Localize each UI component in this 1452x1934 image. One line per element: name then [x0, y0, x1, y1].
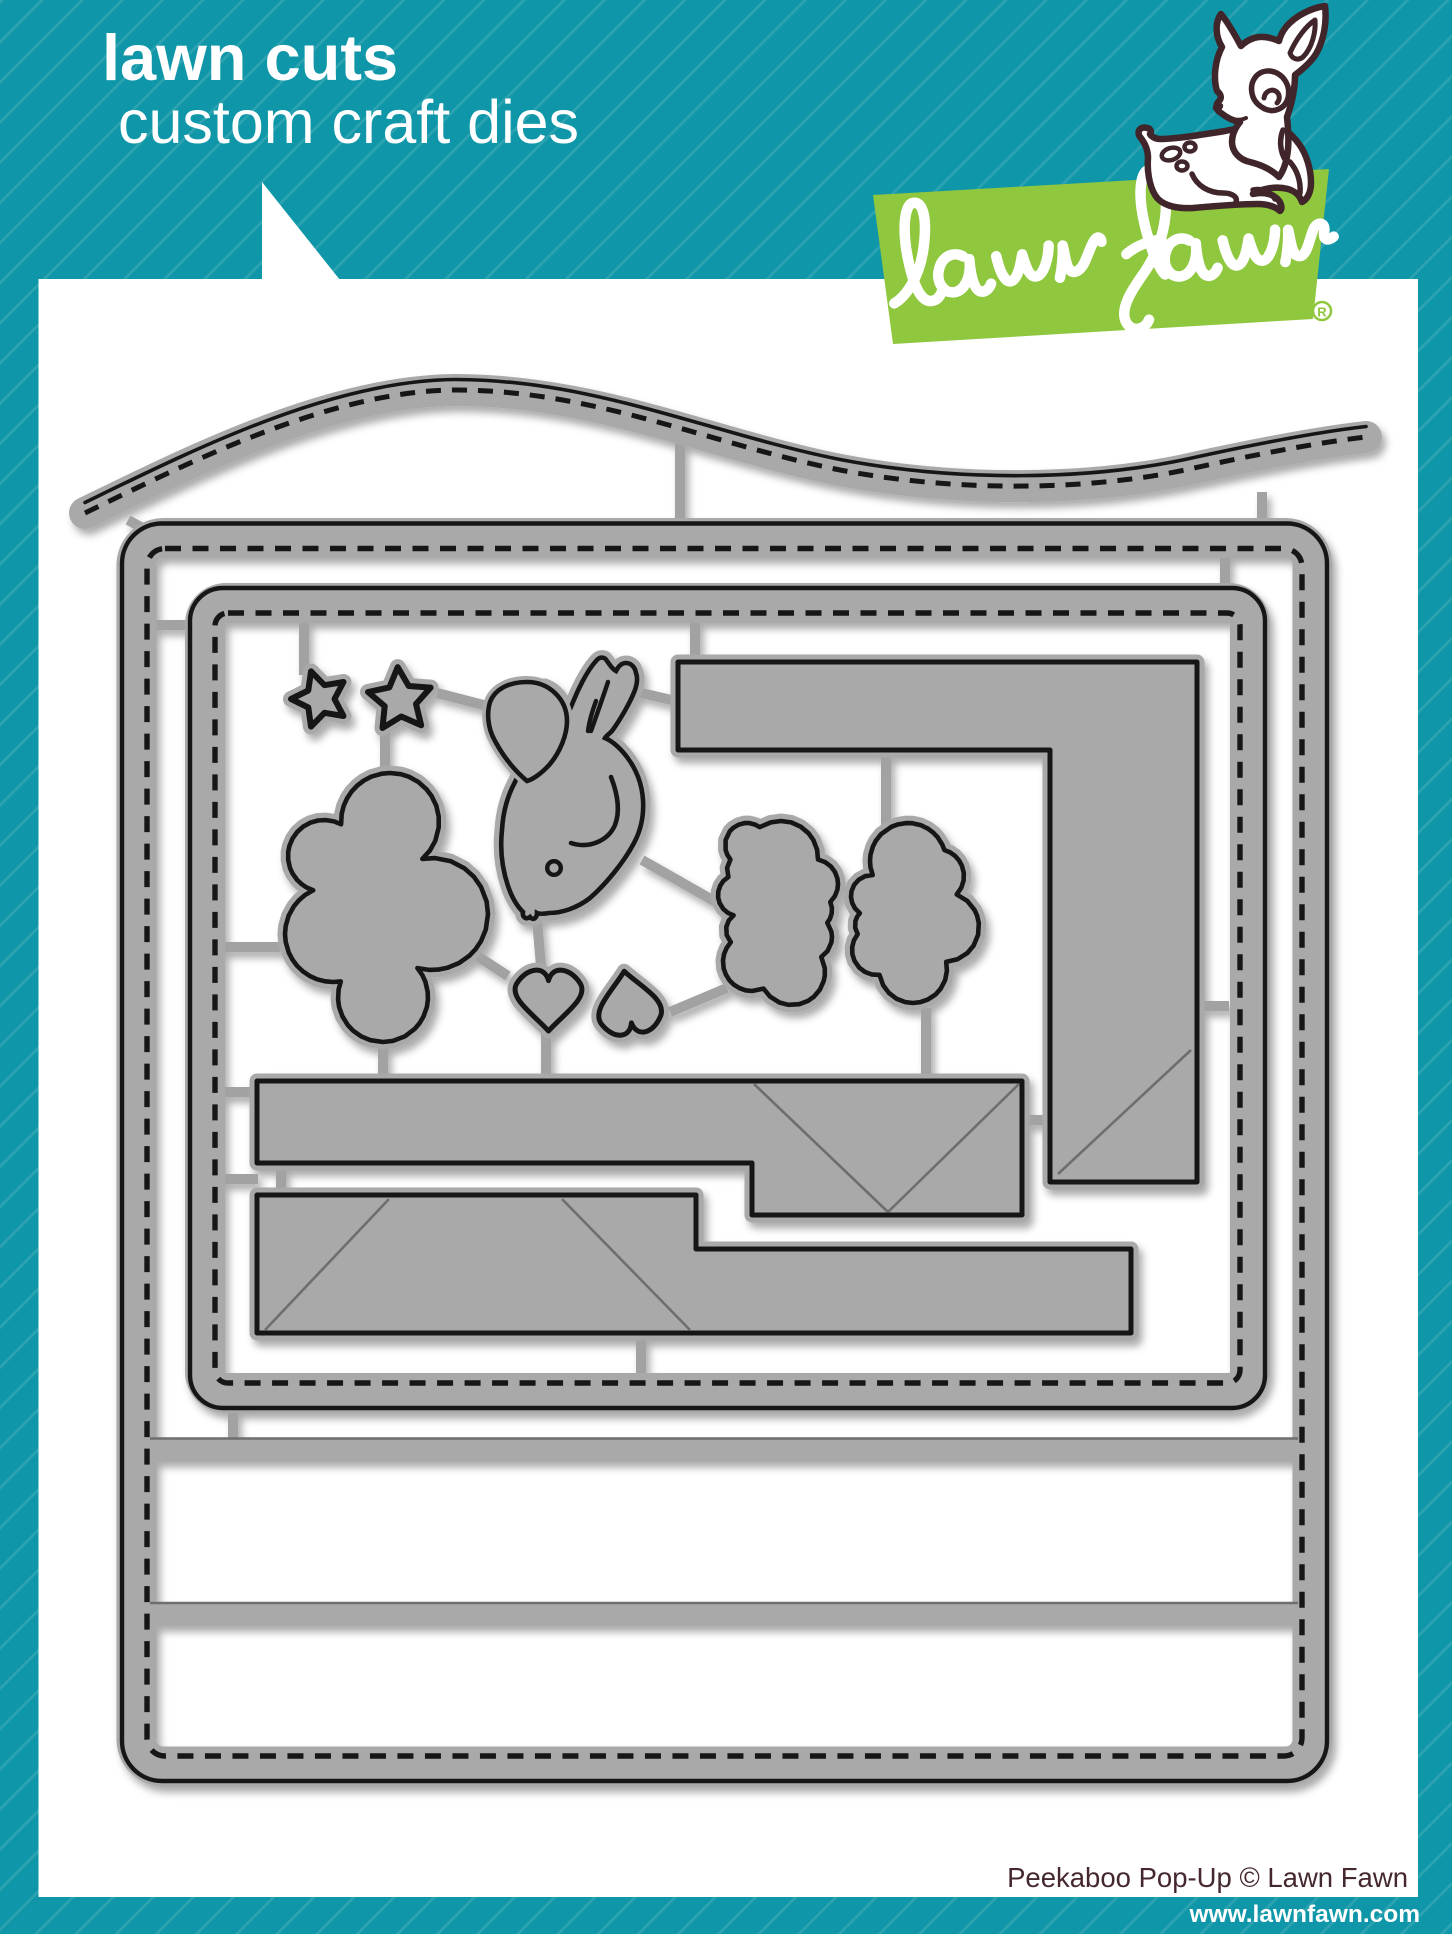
svg-text:lawn cuts: lawn cuts	[102, 21, 398, 94]
svg-text:custom craft dies: custom craft dies	[118, 88, 579, 156]
svg-text:R: R	[1317, 305, 1327, 320]
svg-text:www.lawnfawn.com: www.lawnfawn.com	[1188, 1901, 1420, 1928]
svg-text:Peekaboo Pop-Up © Lawn Fawn: Peekaboo Pop-Up © Lawn Fawn	[1007, 1862, 1408, 1893]
